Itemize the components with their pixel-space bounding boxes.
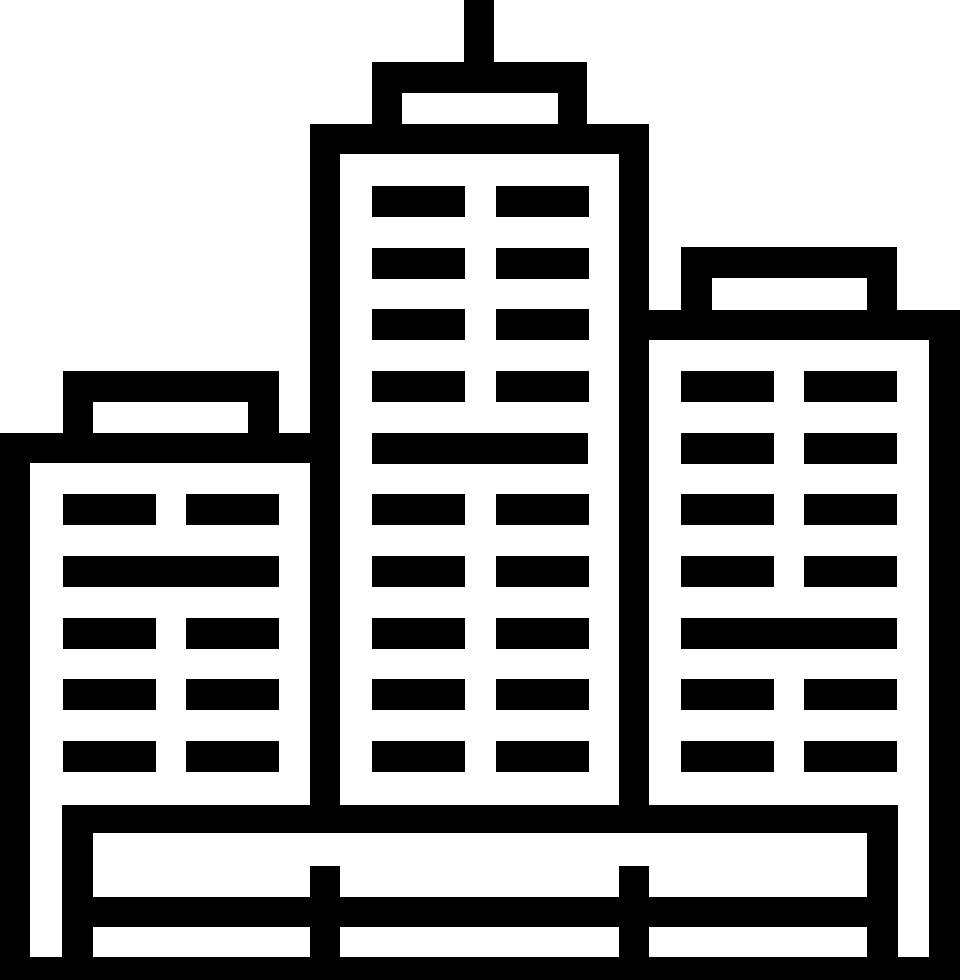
right-building-window-right (804, 433, 897, 464)
center-building-window-right (496, 371, 589, 402)
left-building-window-left (63, 618, 156, 649)
center-building-window-right (496, 556, 589, 587)
right-outer-wall (929, 310, 960, 980)
center-building-window-left (372, 186, 465, 217)
center-building-window-right (496, 679, 589, 710)
right-building-window-row-merged (681, 618, 897, 649)
right-building-window-right (804, 679, 897, 710)
right-building-window-right (804, 741, 897, 772)
fence-rail (93, 897, 867, 927)
center-building-window-left (372, 556, 465, 587)
right-top-band (649, 310, 960, 340)
ground-band (0, 957, 960, 980)
right-building-window-left (681, 741, 774, 772)
right-building-window-right (804, 371, 897, 402)
center-building-window-right (496, 248, 589, 279)
left-building-window-right (186, 494, 279, 525)
left-building-window-left (63, 741, 156, 772)
center-building-window-left (372, 618, 465, 649)
center-building-window-left (372, 741, 465, 772)
center-building-window-row-merged (372, 433, 588, 464)
center-building-window-left (372, 248, 465, 279)
left-roof-notch (93, 402, 248, 433)
base-band (62, 805, 898, 833)
right-building-window-left (681, 371, 774, 402)
left-outer-wall (0, 433, 30, 980)
left-building-window-row-merged (63, 556, 279, 587)
fence-left-post (62, 833, 93, 957)
left-building-window-right (186, 679, 279, 710)
left-building-window-right (186, 741, 279, 772)
right-building-window-left (681, 556, 774, 587)
left-building-window-left (63, 494, 156, 525)
right-building-window-left (681, 679, 774, 710)
center-building-window-right (496, 186, 589, 217)
city-buildings-icon (0, 0, 960, 980)
center-left-wall (310, 124, 340, 833)
center-building-window-left (372, 309, 465, 340)
center-building-window-right (496, 618, 589, 649)
left-top-band (0, 433, 340, 463)
center-roof-notch (402, 93, 558, 124)
left-building-window-left (63, 679, 156, 710)
center-top-band (310, 124, 648, 154)
right-building-window-right (804, 494, 897, 525)
antenna (464, 0, 494, 62)
fence-right-post (867, 833, 898, 957)
center-building-window-left (372, 679, 465, 710)
center-right-wall (619, 124, 649, 833)
right-building-window-left (681, 433, 774, 464)
center-building-window-right (496, 494, 589, 525)
right-building-window-right (804, 556, 897, 587)
left-building-window-right (186, 618, 279, 649)
center-building-window-right (496, 741, 589, 772)
right-roof-notch (712, 278, 867, 310)
center-building-window-right (496, 309, 589, 340)
center-building-window-left (372, 371, 465, 402)
center-building-window-left (372, 494, 465, 525)
right-building-window-left (681, 494, 774, 525)
